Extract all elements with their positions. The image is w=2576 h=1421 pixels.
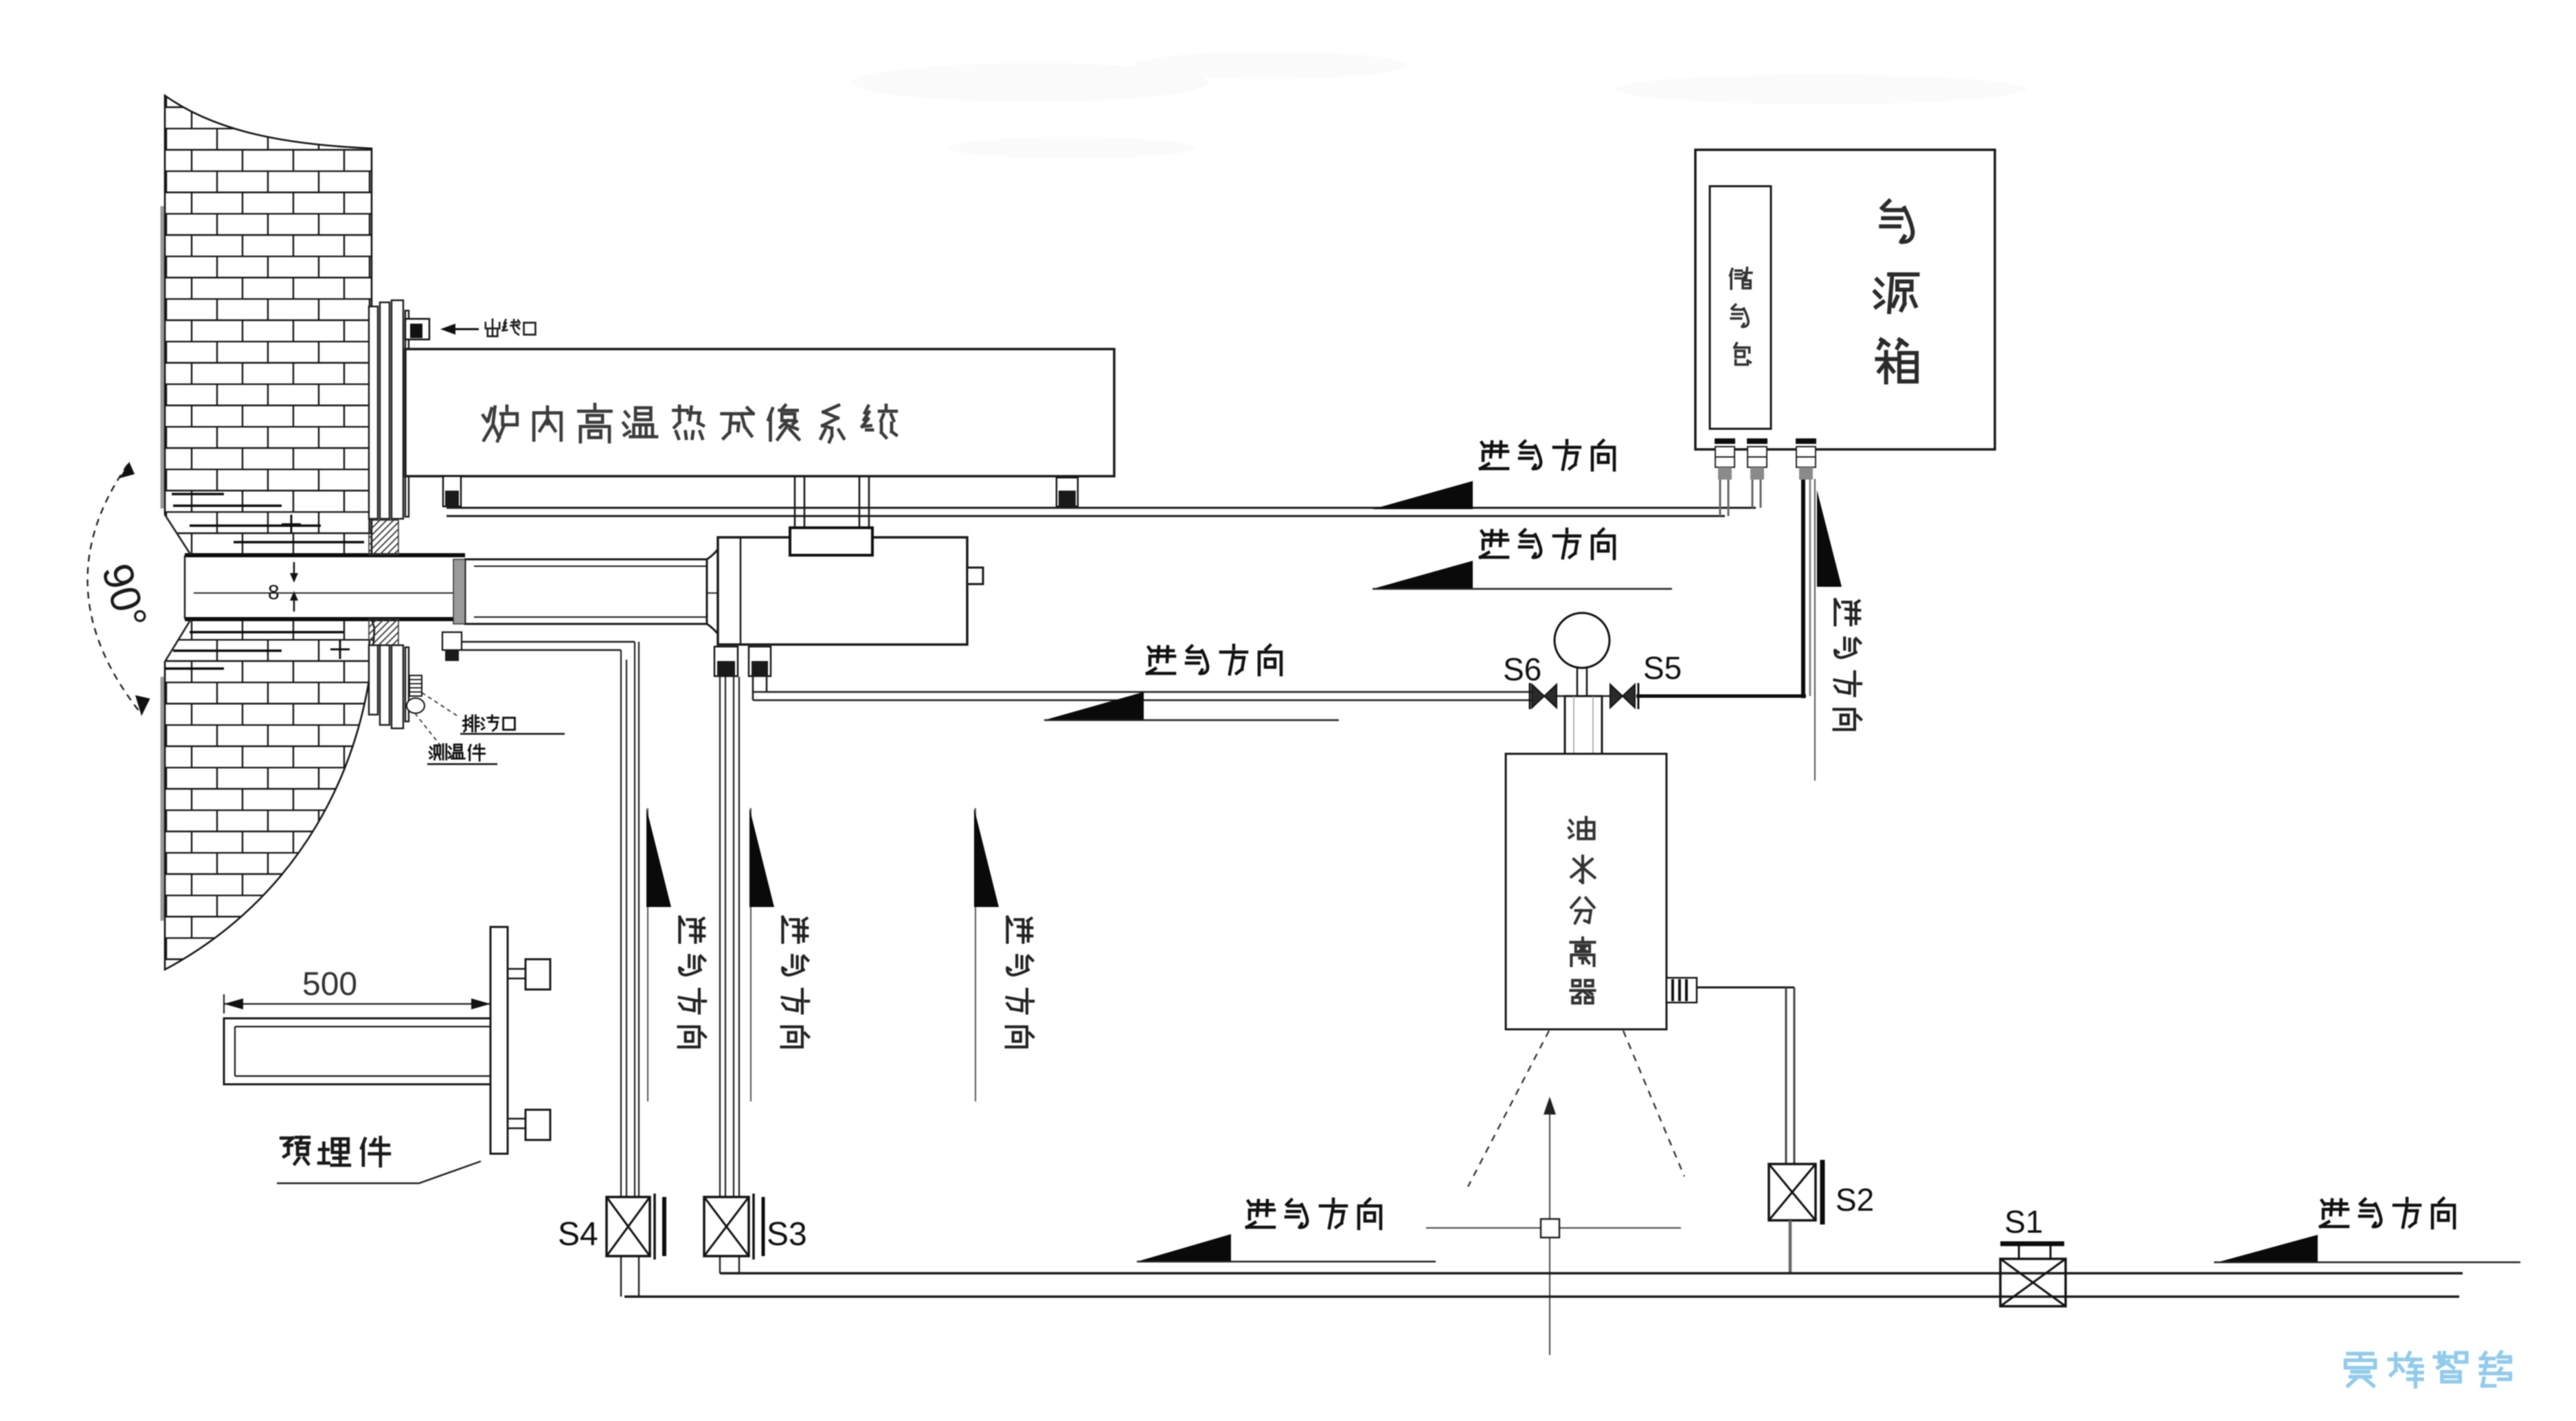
svg-text:500: 500 <box>302 966 357 1003</box>
svg-text:S1: S1 <box>2004 1204 2043 1240</box>
svg-text:S6: S6 <box>1503 651 1541 687</box>
svg-text:S2: S2 <box>1835 1182 1874 1218</box>
svg-text:S3: S3 <box>767 1216 807 1253</box>
svg-text:S5: S5 <box>1643 650 1682 686</box>
svg-text:S4: S4 <box>558 1216 598 1253</box>
